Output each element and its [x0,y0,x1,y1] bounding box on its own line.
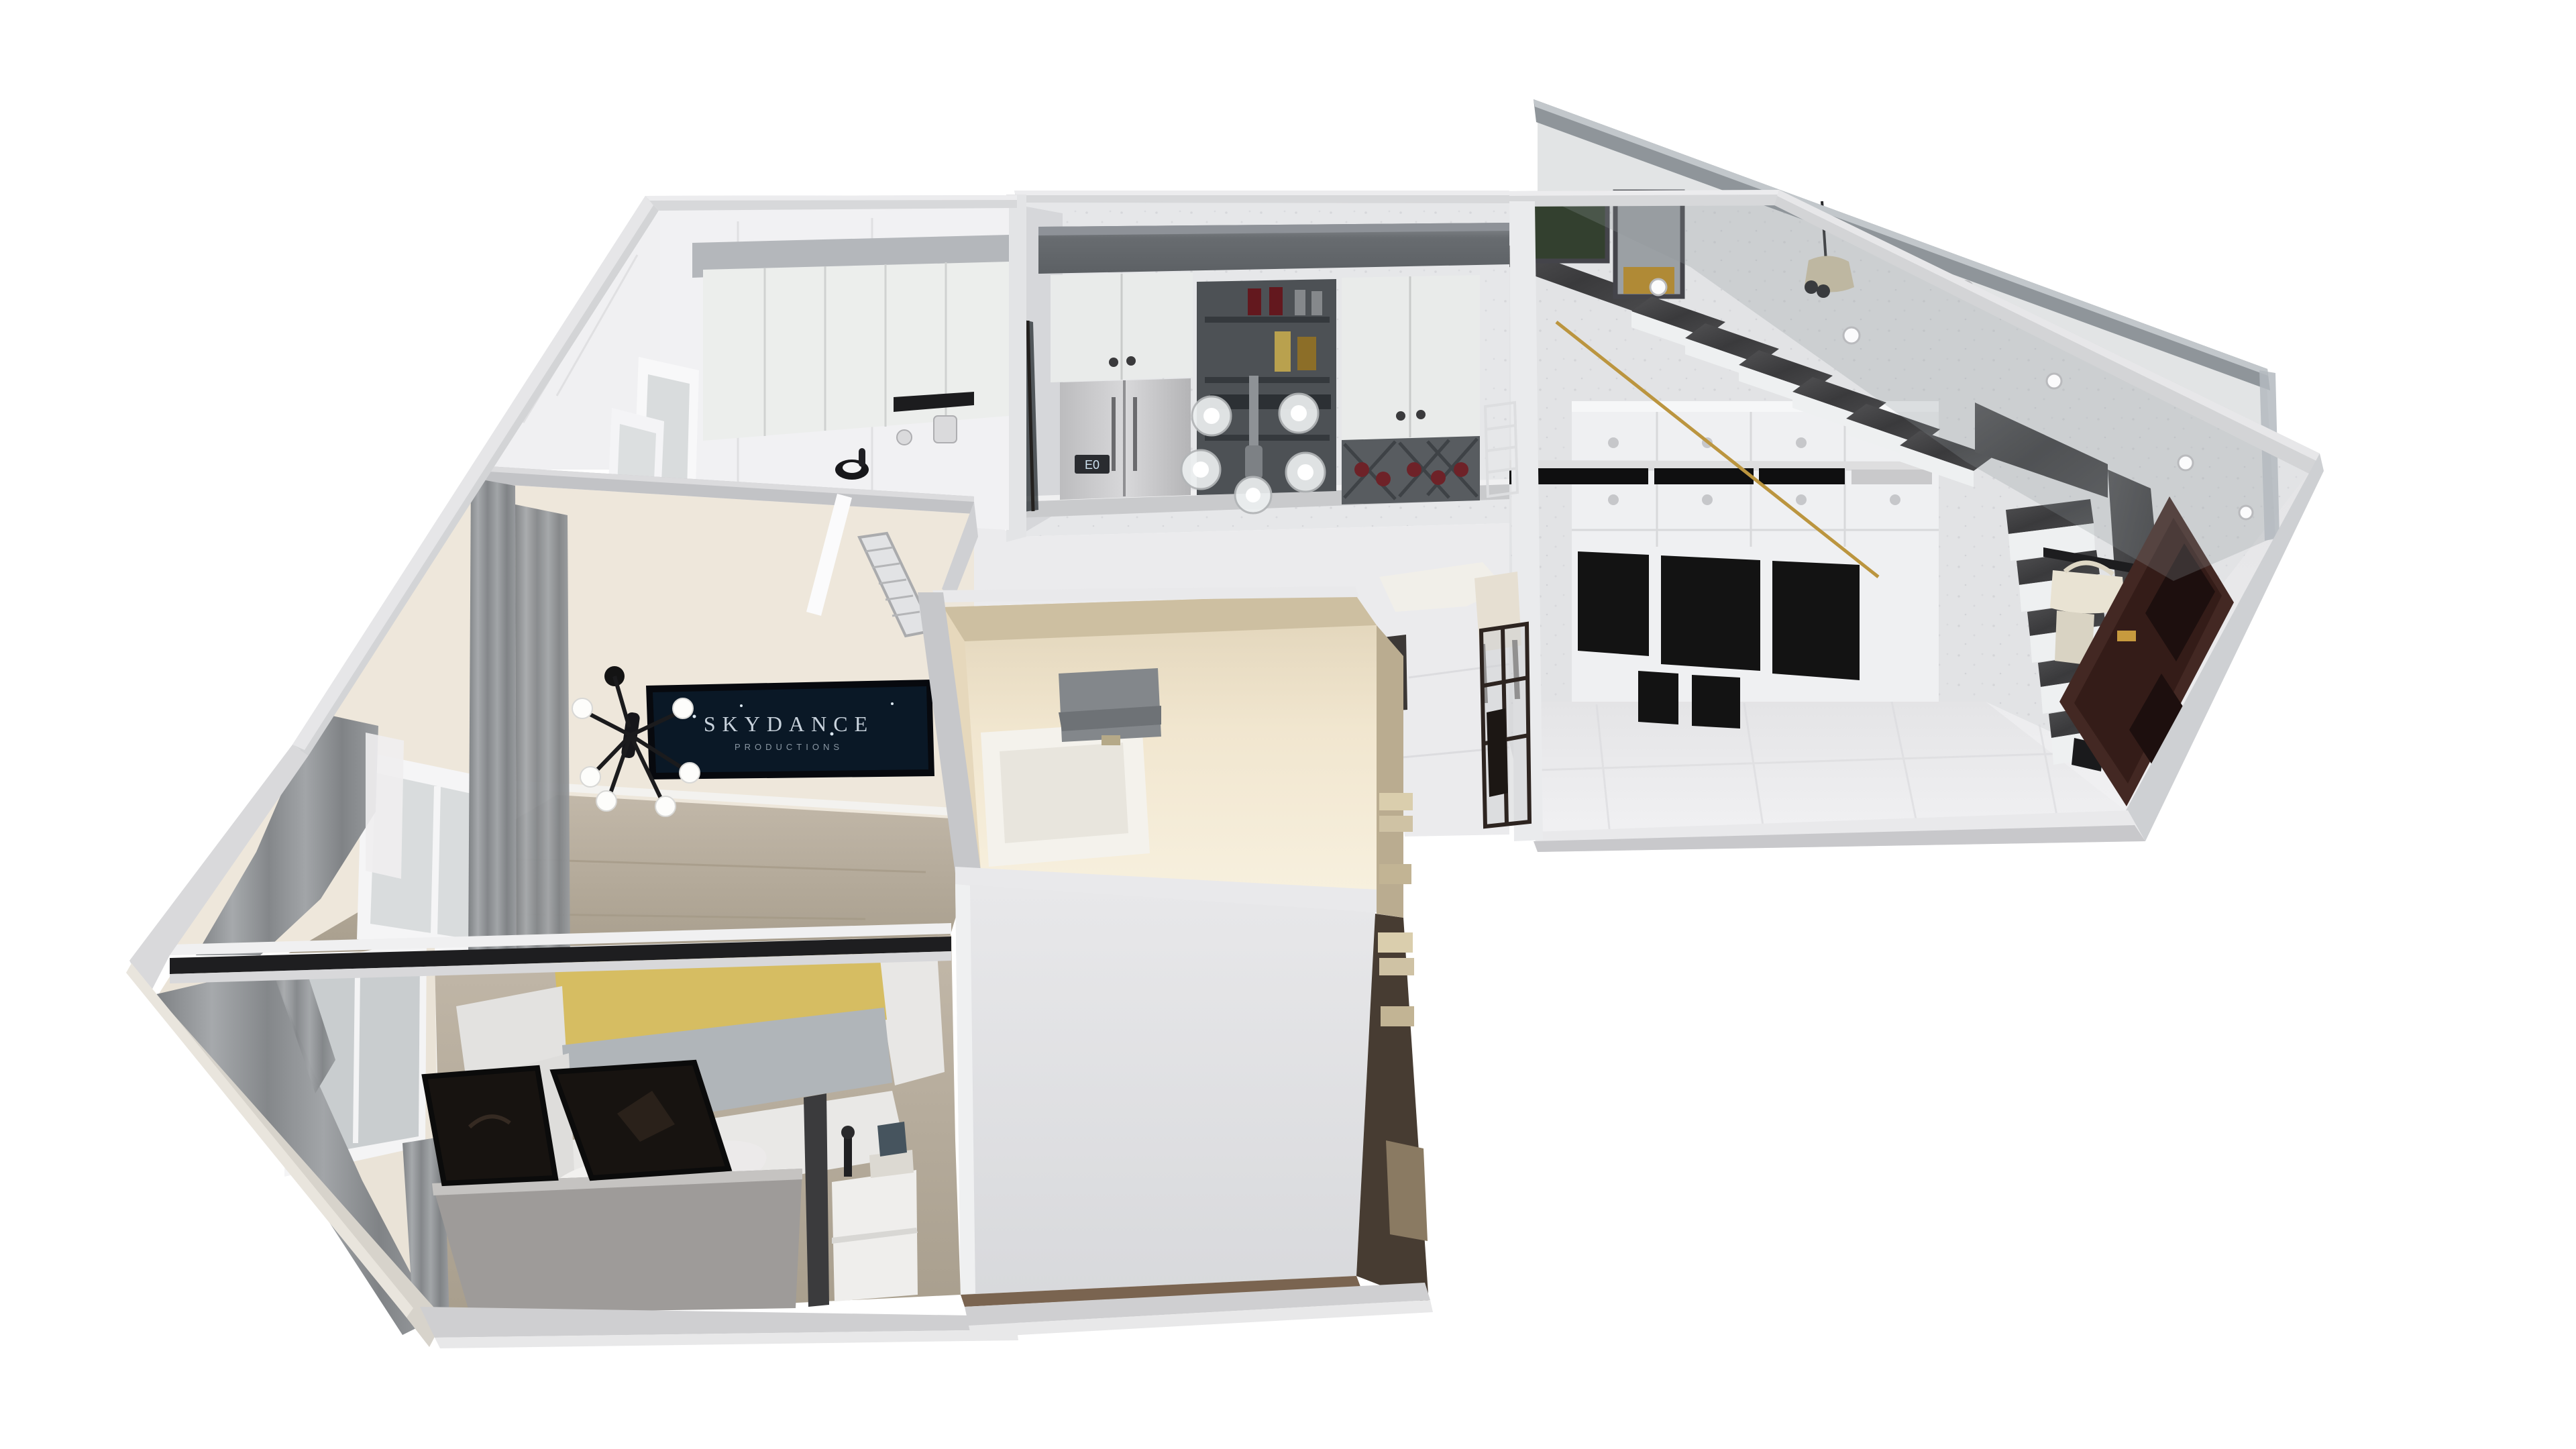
svg-text:PRODUCTIONS: PRODUCTIONS [735,742,843,752]
svg-text:SKYDANCE: SKYDANCE [704,712,874,736]
svg-text:E0: E0 [1085,458,1099,472]
